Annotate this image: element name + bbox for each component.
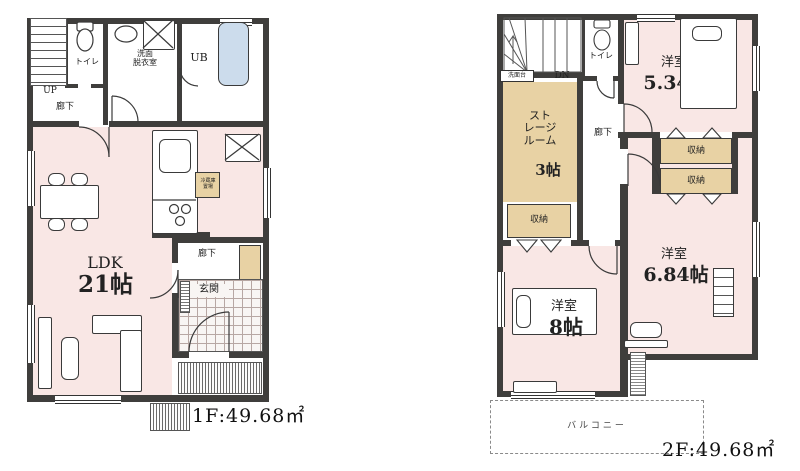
window: [263, 168, 271, 218]
dining-chair: [71, 218, 88, 231]
wall: [577, 72, 583, 240]
storage-name-label: スト レージ ルーム: [505, 110, 575, 156]
stairs-up-label: UP: [35, 86, 65, 98]
sofa-side: [120, 330, 142, 392]
dining-chair: [71, 173, 88, 186]
desk: [625, 22, 639, 65]
closet-2: 収納: [660, 168, 732, 194]
washroom-label: 洗面 脱衣室: [121, 50, 169, 76]
wall: [582, 14, 585, 76]
kitchen-sink: [159, 139, 191, 173]
wall: [652, 132, 660, 194]
pantry-closet: [225, 134, 261, 162]
staircase-1f: [30, 18, 67, 86]
hall-2f-label: 廊下: [587, 128, 619, 140]
floor2-area-label: 2F:49.68㎡: [662, 435, 800, 462]
bookshelf: [713, 268, 734, 317]
stairs-dn-label: DN: [548, 71, 576, 83]
ldk-name-label: LDK: [75, 254, 135, 272]
hall-entry-label: 廊下: [187, 249, 227, 262]
wall: [618, 14, 624, 104]
floor1-area-label: 1F:49.68㎡: [192, 401, 372, 428]
wall: [571, 240, 589, 246]
storage-closet: 収納: [507, 204, 571, 238]
toilet-label: トイレ: [71, 58, 103, 69]
storage-size-label: 3帖: [513, 162, 583, 184]
pillow: [692, 26, 722, 41]
entrance-label: 玄関: [189, 284, 229, 297]
wall: [503, 240, 511, 246]
landing-fixture-label: 洗面台: [501, 73, 533, 80]
closet-1: 収納: [660, 138, 732, 164]
wall: [620, 138, 628, 149]
window: [630, 352, 646, 396]
window: [752, 222, 760, 277]
closet-2-label: 収納: [661, 176, 731, 186]
outer-porch: [150, 403, 190, 431]
wall: [177, 18, 182, 125]
window: [637, 14, 675, 22]
floor-plan-1f: UP 廊下 トイレ 洗面 脱衣室 UB 冷蔵庫 置場 LDK 21帖: [27, 18, 269, 402]
inner-porch: [178, 362, 262, 394]
refrigerator-label: 冷蔵庫 置場: [197, 179, 219, 190]
storage-closet-label: 収納: [508, 215, 570, 225]
bedroom2-size-label: 6.84帖: [631, 265, 721, 289]
bathtub: [218, 22, 249, 86]
floor-plan-2f: DN 洗面台 トイレ スト レージ ルーム 3帖 収納 廊下 洋室 5.34帖 …: [497, 14, 758, 398]
toilet-2f-label: トイレ: [585, 52, 617, 64]
wall: [103, 18, 108, 125]
hall-upper-label: 廊下: [45, 102, 85, 114]
wall: [615, 240, 628, 246]
floor-plan-page: UP 廊下 トイレ 洗面 脱衣室 UB 冷蔵庫 置場 LDK 21帖: [0, 0, 800, 471]
wall: [109, 121, 263, 127]
bedroom2-name-label: 洋室: [649, 248, 699, 263]
dining-chair: [48, 173, 65, 186]
side-table: [61, 337, 79, 380]
genkan-step-cabinet: [180, 281, 190, 313]
wall: [172, 352, 189, 358]
ldk-size-label: 21帖: [68, 272, 143, 300]
refrigerator-space: 冷蔵庫 置場: [195, 172, 220, 198]
dining-chair: [48, 218, 65, 231]
bath-label: UB: [183, 52, 215, 66]
window: [752, 46, 760, 91]
washing-machine: [143, 20, 175, 50]
balcony-label: バルコニー: [537, 421, 657, 431]
closet-1-label: 収納: [661, 146, 731, 156]
window: [55, 395, 121, 404]
wall: [582, 76, 597, 81]
wall: [67, 84, 78, 88]
tv-board: [38, 317, 52, 389]
dining-table: [40, 185, 99, 219]
window: [27, 305, 35, 363]
bedroom3-size-label: 8帖: [531, 316, 601, 342]
desk: [513, 381, 557, 393]
wall: [27, 121, 79, 127]
wall: [620, 184, 628, 391]
bedroom3-name-label: 洋室: [529, 300, 599, 315]
window: [497, 272, 505, 327]
landing-fixture: 洗面台: [500, 70, 534, 82]
desk: [630, 322, 662, 338]
desk-bench: [624, 340, 668, 348]
wall: [732, 132, 738, 194]
window: [27, 151, 35, 206]
wall: [229, 352, 269, 358]
